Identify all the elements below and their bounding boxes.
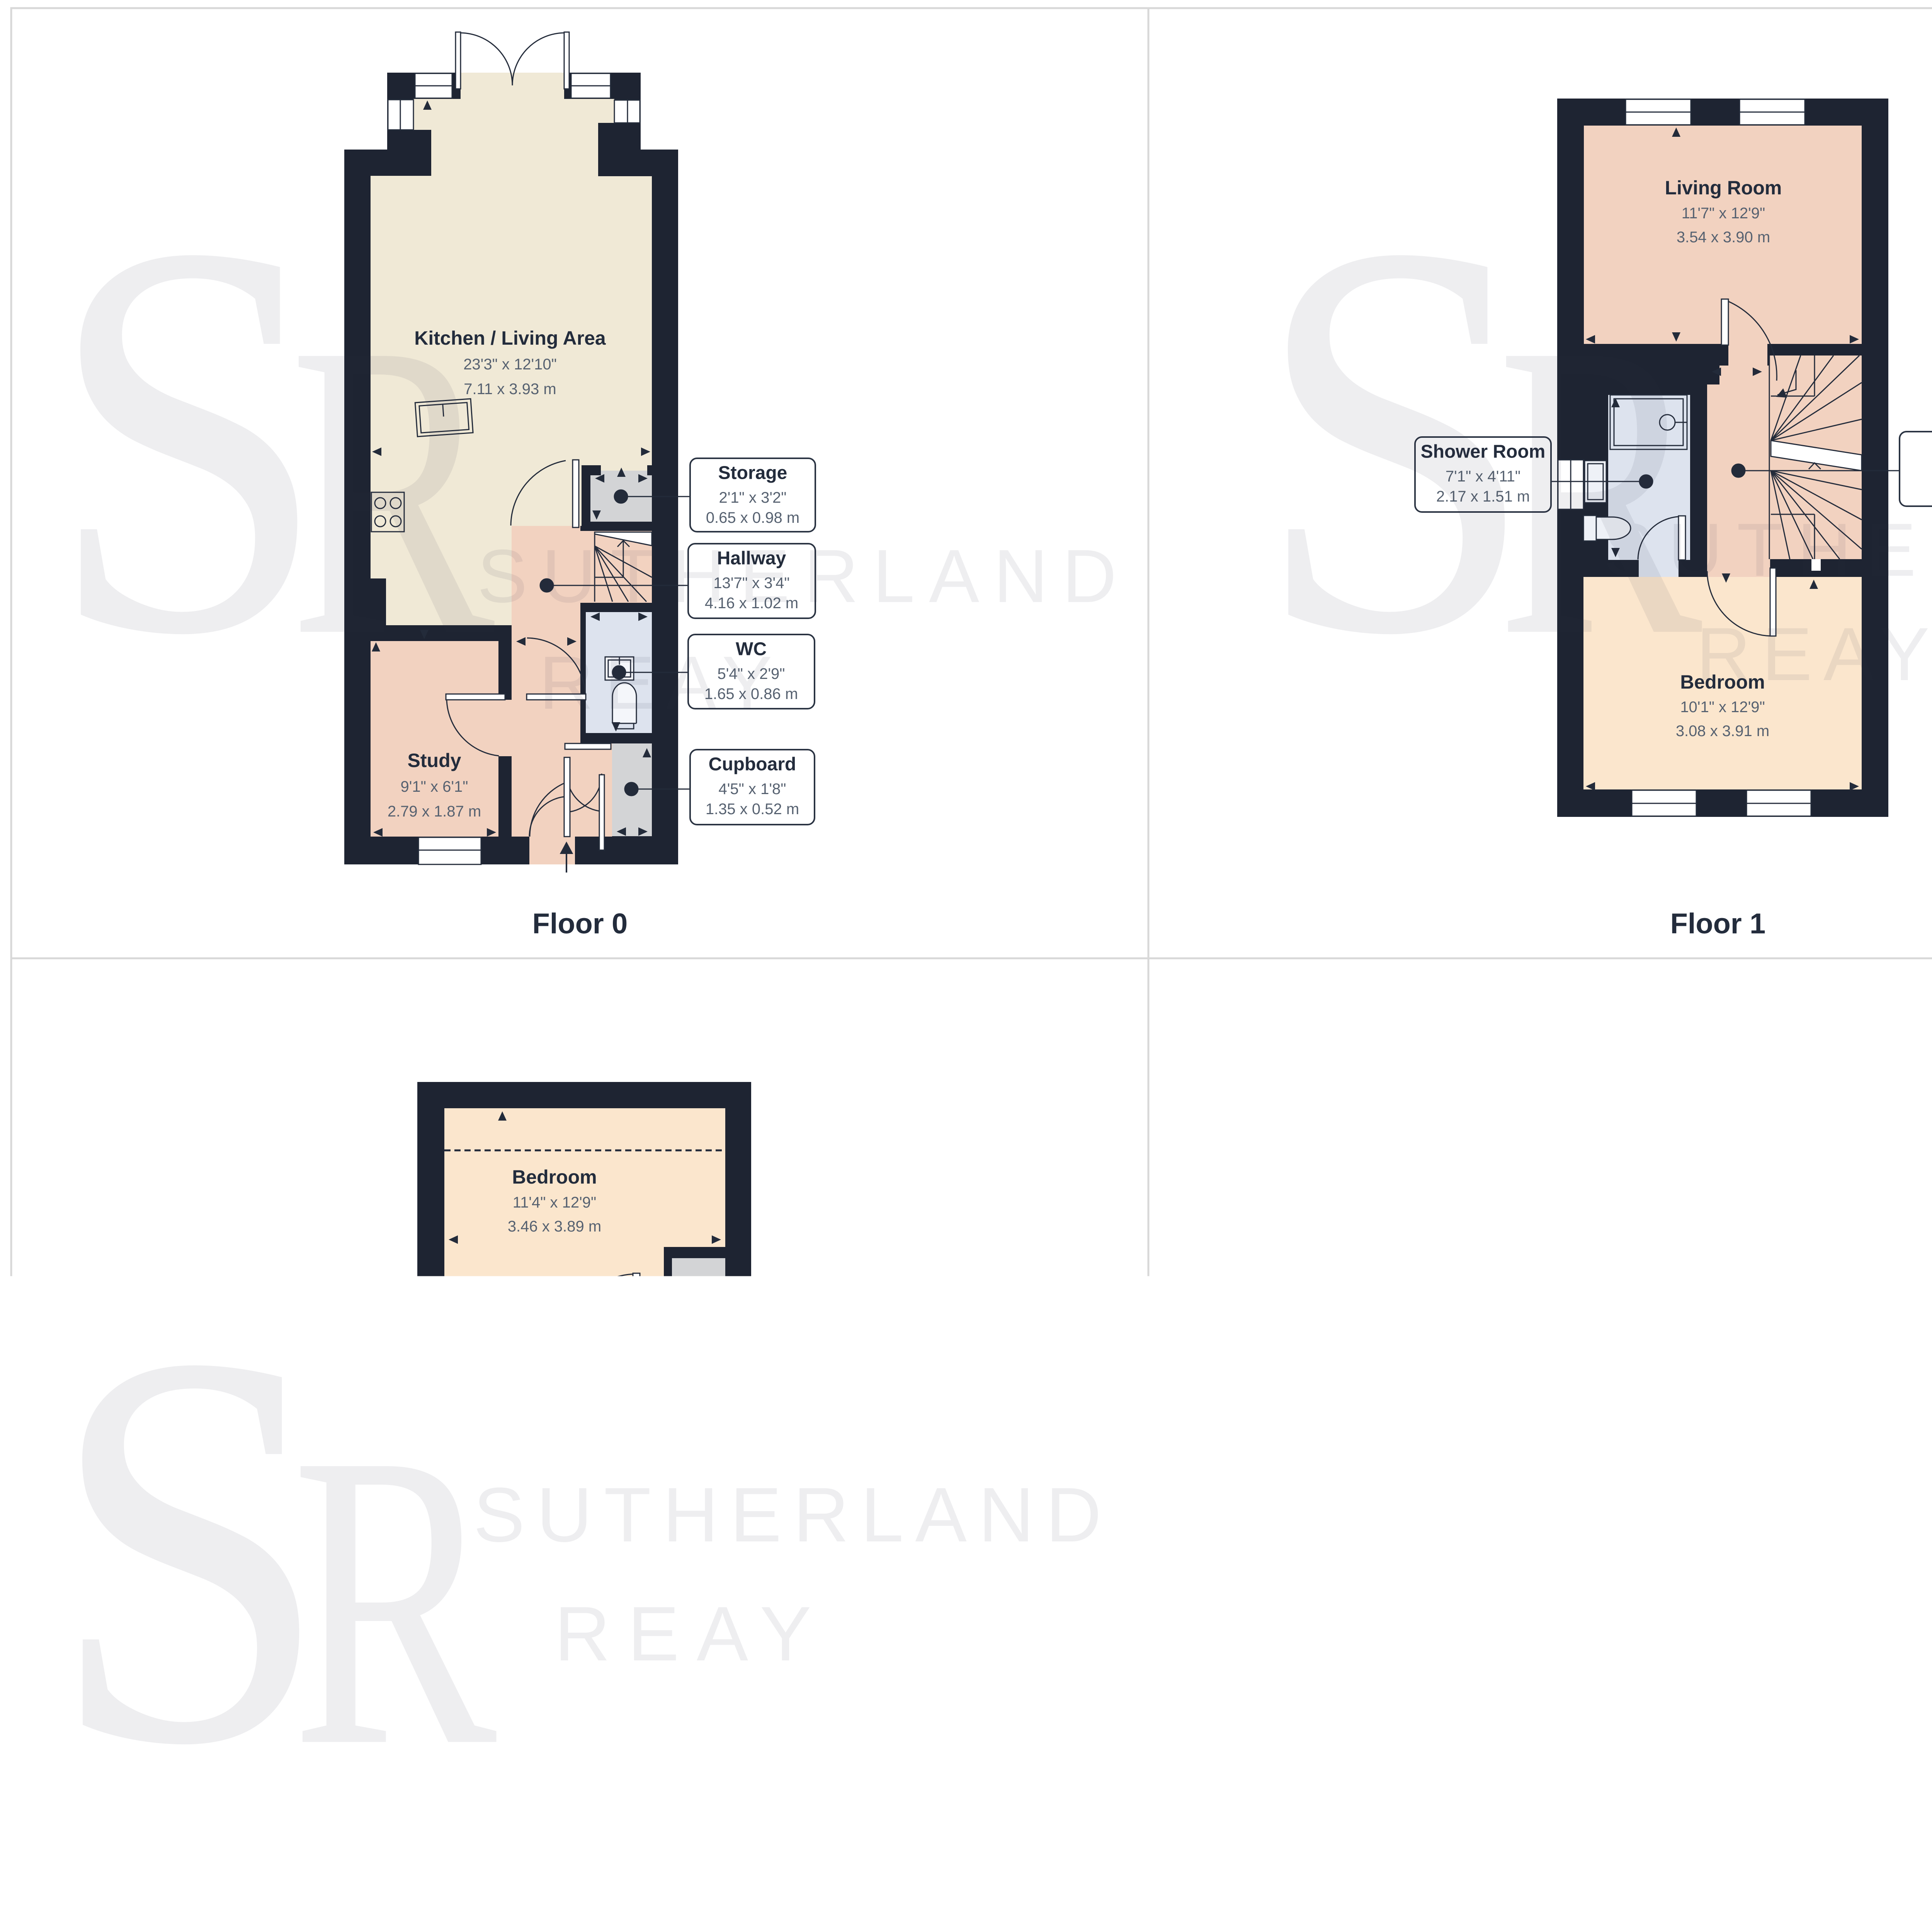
svg-text:REAY: REAY <box>539 641 784 725</box>
svg-text:Study: Study <box>408 750 461 771</box>
svg-text:R: R <box>290 257 497 723</box>
svg-text:Floor 0: Floor 0 <box>532 908 628 940</box>
svg-text:11'7" x 12'9": 11'7" x 12'9" <box>1682 205 1765 222</box>
svg-text:Floor 2: Floor 2 <box>531 1856 626 1888</box>
svg-text:11'4" x 12'9": 11'4" x 12'9" <box>513 1194 596 1211</box>
svg-text:R: R <box>292 1367 498 1833</box>
svg-text:REAY: REAY <box>554 1591 829 1677</box>
svg-text:3.08 x 3.91 m: 3.08 x 3.91 m <box>1676 723 1769 740</box>
svg-text:3.54 x 3.90 m: 3.54 x 3.90 m <box>1677 229 1770 246</box>
svg-text:Living Room: Living Room <box>1665 177 1782 199</box>
svg-text:Storage: Storage <box>718 463 787 483</box>
svg-text:SUTHERLAND: SUTHERLAND <box>477 534 1131 618</box>
svg-text:1.35 x 0.52 m: 1.35 x 0.52 m <box>706 801 799 818</box>
svg-text:2'1" x 3'2": 2'1" x 3'2" <box>719 489 787 506</box>
svg-text:2.79 x 1.87 m: 2.79 x 1.87 m <box>388 803 481 820</box>
svg-text:S: S <box>48 1237 331 1861</box>
svg-text:3.46 x 3.89 m: 3.46 x 3.89 m <box>508 1218 601 1235</box>
svg-text:Landing: Landing <box>788 1379 861 1400</box>
svg-text:5'9" x 3'3": 5'9" x 3'3" <box>791 1405 858 1422</box>
svg-text:0.65 x 0.98 m: 0.65 x 0.98 m <box>706 509 799 526</box>
svg-text:9'1" x 6'1": 9'1" x 6'1" <box>401 778 468 795</box>
svg-text:R: R <box>1497 257 1704 723</box>
svg-text:Cupboard: Cupboard <box>709 754 796 775</box>
svg-text:S: S <box>46 126 329 751</box>
svg-text:4'5" x 1'8": 4'5" x 1'8" <box>719 781 786 798</box>
svg-text:REAY: REAY <box>1696 612 1932 696</box>
svg-text:Bedroom: Bedroom <box>512 1166 597 1188</box>
svg-text:Floor 1: Floor 1 <box>1670 908 1766 940</box>
svg-text:1.77 x 0.99 m: 1.77 x 0.99 m <box>777 1425 871 1442</box>
svg-text:SUTHERLAND: SUTHERLAND <box>473 1472 1113 1558</box>
svg-text:S: S <box>1254 126 1536 751</box>
svg-text:SUTHERLAND: SUTHERLAND <box>1604 508 1932 592</box>
